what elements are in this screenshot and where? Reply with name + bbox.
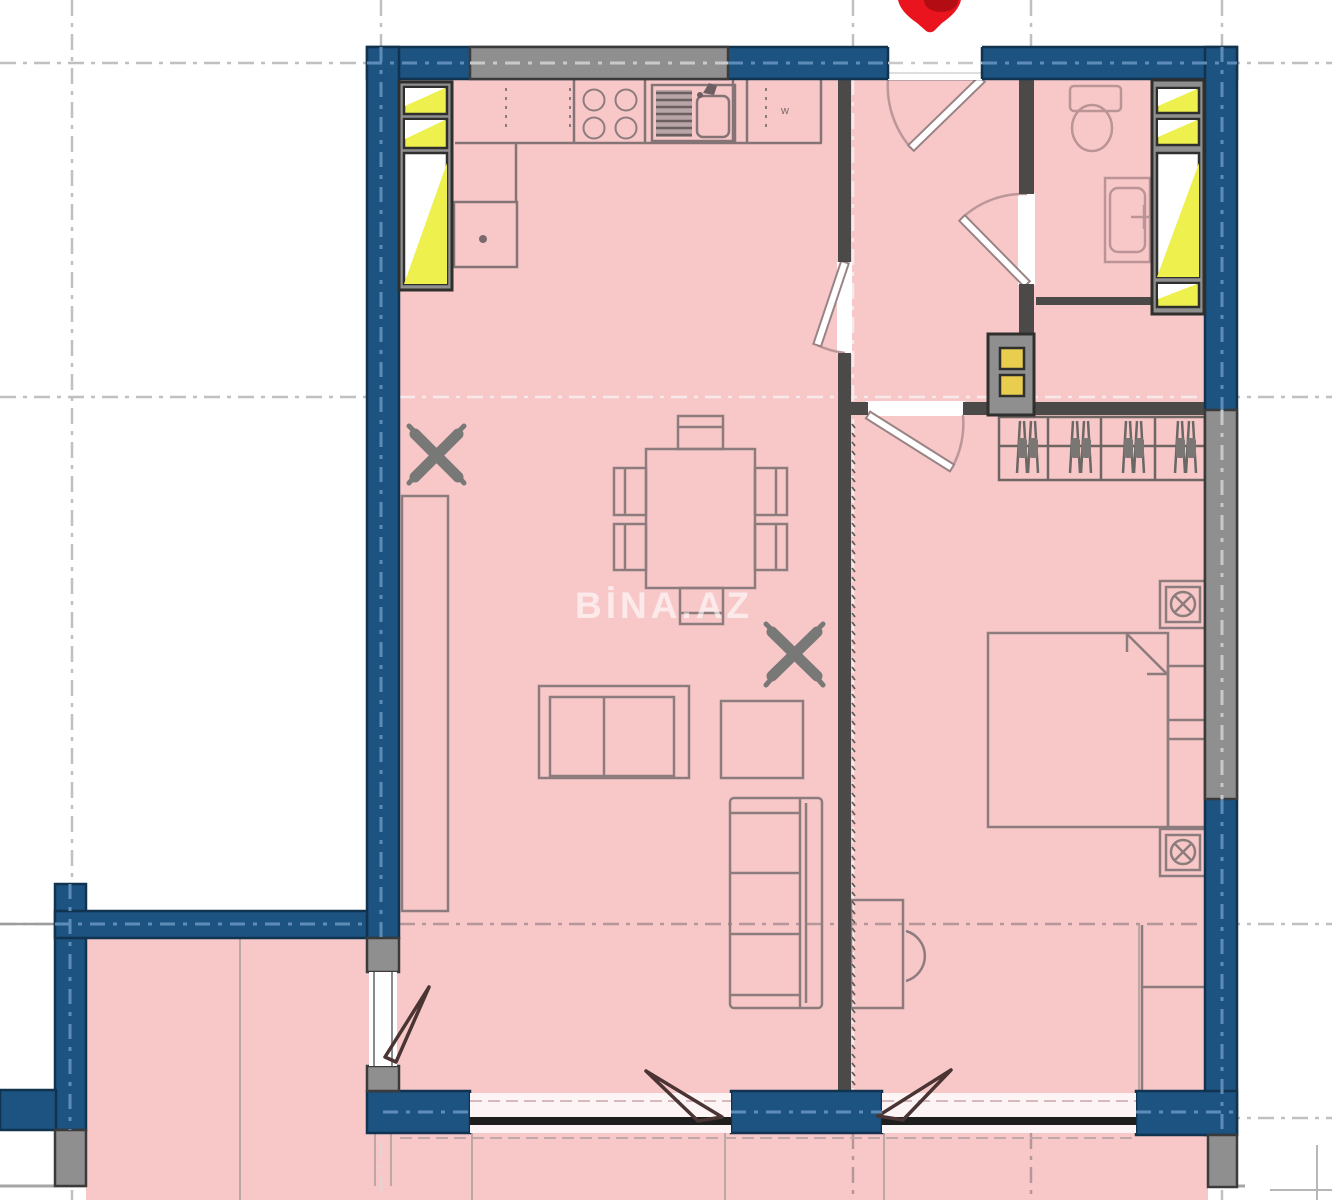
svg-text:w: w [780, 105, 789, 117]
svg-text:BİNA.AZ: BİNA.AZ [575, 585, 753, 626]
